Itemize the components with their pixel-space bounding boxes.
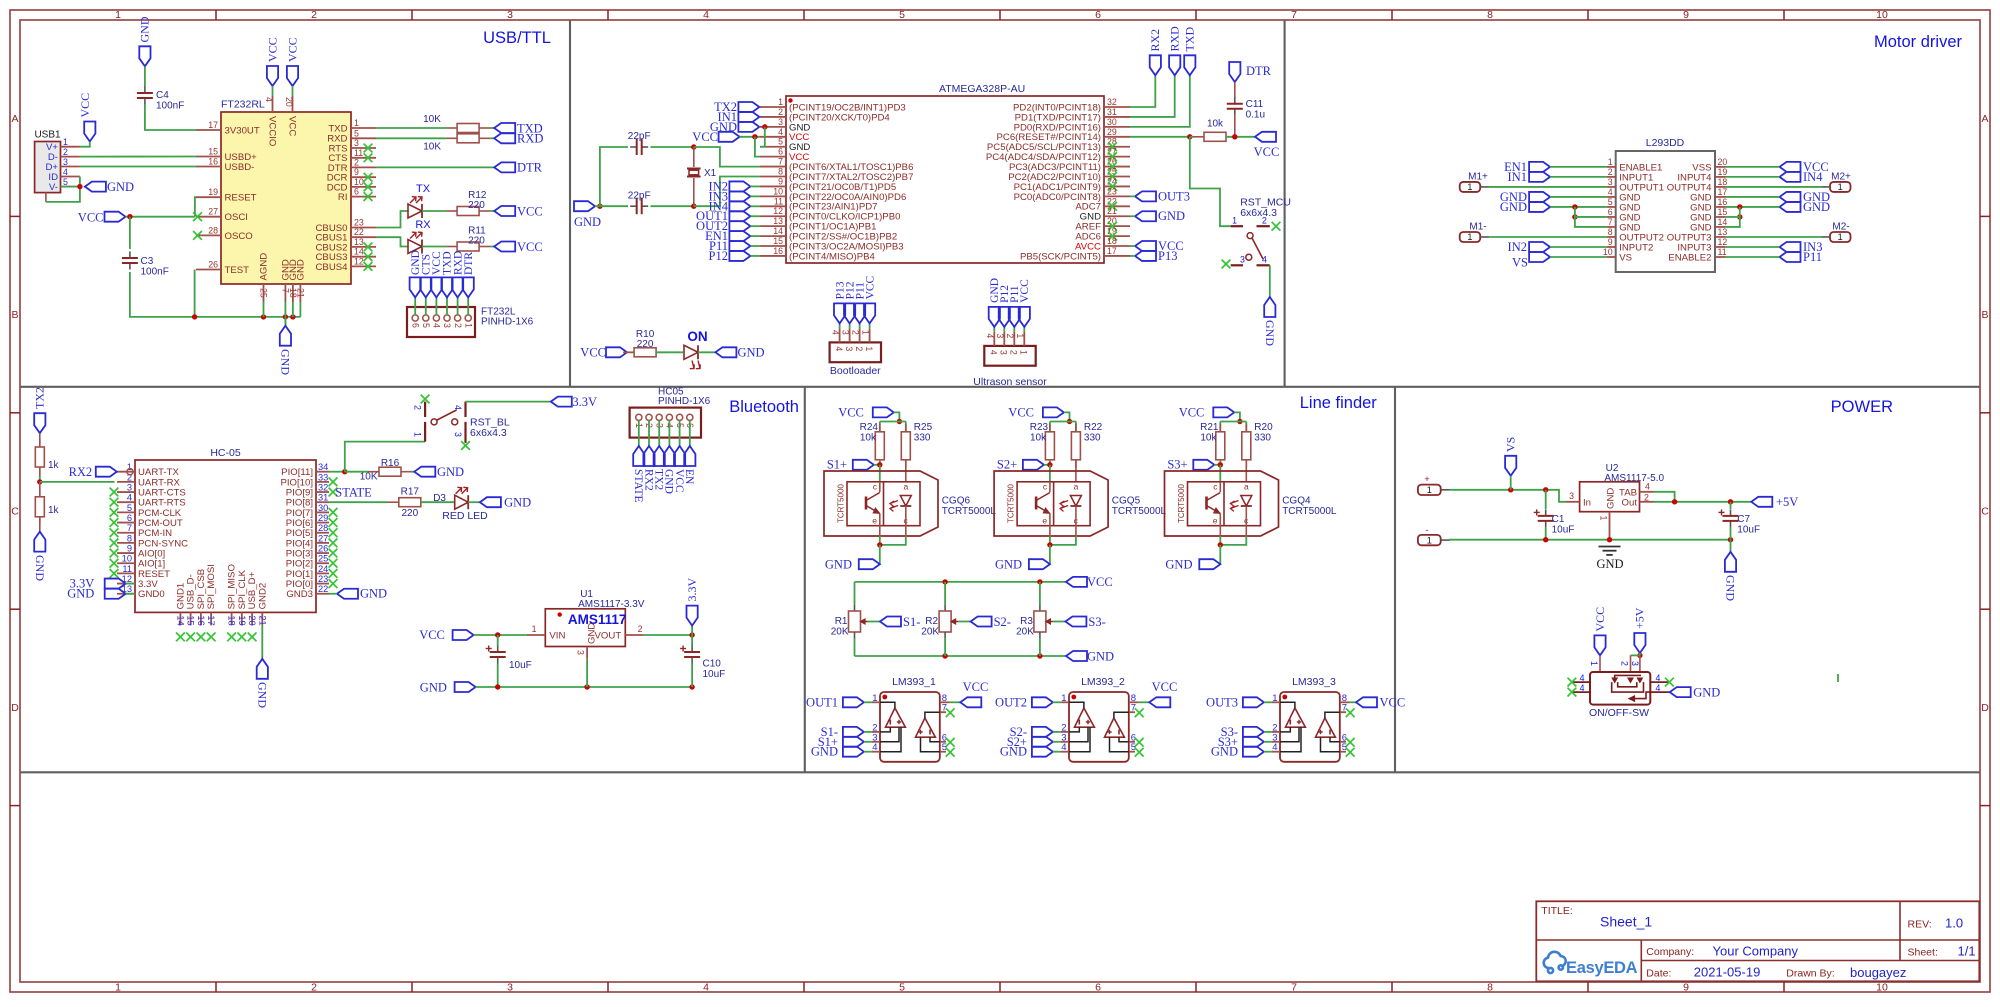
svg-text:7: 7	[1608, 217, 1613, 227]
svg-text:21: 21	[1107, 206, 1117, 216]
svg-text:10: 10	[122, 554, 132, 564]
svg-text:C3: C3	[141, 256, 154, 267]
svg-text:FT232RL: FT232RL	[221, 99, 265, 111]
svg-text:GND: GND	[825, 557, 852, 571]
svg-text:VCC: VCC	[963, 680, 989, 694]
svg-text:10: 10	[773, 186, 783, 196]
svg-text:10K: 10K	[423, 142, 441, 153]
svg-text:VCCIO: VCCIO	[266, 116, 277, 146]
svg-text:Out: Out	[1622, 498, 1638, 509]
svg-text:GND: GND	[1158, 209, 1185, 223]
svg-text:1: 1	[115, 982, 121, 994]
svg-text:Company:: Company:	[1646, 946, 1694, 958]
svg-text:GND: GND	[437, 465, 464, 479]
svg-text:R2: R2	[925, 616, 938, 627]
svg-text:a: a	[1244, 482, 1249, 492]
svg-text:GND: GND	[420, 680, 447, 694]
svg-text:26: 26	[208, 260, 218, 270]
svg-text:10k: 10k	[1030, 433, 1047, 444]
svg-text:VCC: VCC	[692, 130, 718, 144]
svg-text:17: 17	[208, 120, 218, 130]
svg-text:3.3V: 3.3V	[572, 395, 597, 409]
svg-text:18: 18	[1718, 177, 1728, 187]
svg-text:1k: 1k	[48, 460, 60, 471]
svg-text:Your Company: Your Company	[1713, 943, 1799, 958]
svg-text:21: 21	[296, 288, 306, 298]
svg-text:3: 3	[1608, 177, 1613, 187]
svg-text:15: 15	[208, 147, 218, 157]
svg-text:16: 16	[208, 157, 218, 167]
svg-text:33: 33	[318, 472, 328, 482]
svg-text:GND: GND	[255, 682, 269, 708]
svg-text:15: 15	[1718, 207, 1728, 217]
svg-text:11: 11	[1718, 247, 1727, 257]
svg-text:S3+: S3+	[1167, 458, 1187, 472]
svg-text:A: A	[11, 113, 18, 125]
svg-text:VCC: VCC	[1019, 279, 1031, 303]
svg-text:PB5(SCK/PCINT5): PB5(SCK/PCINT5)	[1020, 251, 1101, 262]
svg-text:VCC: VCC	[517, 240, 543, 254]
svg-text:B: B	[1981, 309, 1988, 321]
svg-text:C: C	[1981, 506, 1989, 518]
svg-text:9: 9	[127, 544, 132, 554]
svg-text:2: 2	[638, 624, 643, 634]
svg-text:VCC: VCC	[673, 469, 685, 493]
svg-text:4: 4	[63, 167, 68, 177]
svg-text:GND: GND	[1165, 557, 1192, 571]
svg-text:VS: VS	[1512, 256, 1528, 270]
svg-text:220: 220	[401, 508, 418, 519]
svg-text:e: e	[1042, 516, 1047, 526]
svg-text:6: 6	[1095, 982, 1101, 994]
svg-text:2: 2	[1608, 167, 1613, 177]
svg-text:4: 4	[1580, 673, 1585, 683]
svg-text:1: 1	[413, 432, 423, 437]
svg-text:GND2: GND2	[257, 583, 268, 610]
svg-text:GND: GND	[295, 259, 306, 280]
svg-text:4: 4	[1272, 742, 1277, 753]
svg-text:3: 3	[995, 333, 1005, 338]
svg-text:C11: C11	[1246, 99, 1264, 110]
svg-text:8: 8	[127, 533, 132, 543]
svg-text:21: 21	[257, 615, 267, 625]
svg-text:5: 5	[899, 982, 905, 994]
svg-text:23: 23	[1107, 186, 1117, 196]
svg-text:12: 12	[354, 256, 364, 266]
svg-text:D: D	[1981, 702, 1989, 714]
svg-text:S1-: S1-	[903, 615, 920, 629]
svg-text:GND: GND	[1211, 745, 1238, 759]
svg-text:HC-05: HC-05	[210, 447, 241, 459]
svg-text:1: 1	[1427, 535, 1432, 546]
svg-text:R25: R25	[914, 422, 933, 433]
svg-text:22pF: 22pF	[628, 190, 651, 201]
svg-text:4: 4	[432, 323, 442, 328]
svg-text:1/1: 1/1	[1958, 943, 1976, 958]
svg-text:e: e	[872, 516, 877, 526]
svg-text:27: 27	[318, 533, 328, 543]
svg-text:23: 23	[318, 574, 328, 584]
svg-text:2: 2	[850, 330, 860, 335]
svg-text:7: 7	[1291, 9, 1297, 21]
svg-text:4: 4	[1580, 683, 1585, 693]
svg-text:V-: V-	[49, 182, 58, 193]
svg-text:SPI_MOSI: SPI_MOSI	[206, 564, 217, 609]
svg-text:GND: GND	[1803, 200, 1830, 214]
svg-text:DTR: DTR	[517, 161, 543, 175]
svg-text:20: 20	[1718, 157, 1728, 167]
svg-text:19: 19	[208, 187, 218, 197]
svg-text:ATMEGA328P-AU: ATMEGA328P-AU	[939, 83, 1025, 95]
svg-text:5: 5	[778, 137, 783, 147]
svg-text:23: 23	[354, 218, 364, 228]
svg-text:19: 19	[1718, 167, 1728, 177]
svg-text:D3: D3	[433, 493, 446, 504]
svg-text:4: 4	[830, 330, 840, 335]
svg-text:2: 2	[854, 346, 864, 351]
svg-text:4: 4	[872, 742, 877, 753]
svg-text:10K: 10K	[360, 472, 378, 483]
svg-text:GND: GND	[138, 16, 152, 42]
svg-text:15: 15	[773, 236, 783, 246]
svg-text:P12: P12	[709, 249, 728, 263]
svg-text:1: 1	[1232, 216, 1237, 226]
svg-text:VCC: VCC	[285, 37, 299, 62]
svg-text:8: 8	[1608, 227, 1613, 237]
svg-text:2: 2	[311, 982, 317, 994]
svg-text:18: 18	[227, 615, 237, 625]
svg-text:-: -	[1425, 525, 1428, 536]
svg-text:STATE: STATE	[335, 486, 372, 500]
svg-text:10uF: 10uF	[1552, 525, 1575, 536]
svg-text:4: 4	[1645, 481, 1650, 491]
svg-text:100nF: 100nF	[141, 267, 169, 278]
svg-text:LM393_2: LM393_2	[1081, 676, 1125, 688]
svg-text:1: 1	[1427, 485, 1432, 496]
svg-text:P11: P11	[1803, 250, 1822, 264]
svg-text:LM393_1: LM393_1	[892, 676, 936, 688]
svg-text:TCRT5000L: TCRT5000L	[1112, 506, 1167, 517]
svg-text:6: 6	[1608, 207, 1613, 217]
svg-text:16: 16	[196, 615, 206, 625]
svg-text:28: 28	[318, 523, 328, 533]
svg-text:Sheet_1: Sheet_1	[1600, 913, 1652, 929]
svg-text:OSCI: OSCI	[225, 212, 248, 223]
svg-text:S3-: S3-	[1088, 615, 1105, 629]
svg-text:4: 4	[703, 982, 709, 994]
svg-text:5: 5	[354, 128, 359, 138]
svg-text:PINHD-1X6: PINHD-1X6	[481, 317, 534, 328]
svg-text:9: 9	[1683, 9, 1689, 21]
svg-text:VCC: VCC	[1254, 145, 1280, 159]
svg-text:LM393_3: LM393_3	[1292, 676, 1336, 688]
svg-text:3.3V: 3.3V	[685, 578, 699, 602]
svg-text:11: 11	[774, 196, 783, 206]
svg-text:R23: R23	[1030, 422, 1049, 433]
svg-text:Bluetooth: Bluetooth	[729, 398, 799, 416]
svg-text:D: D	[11, 702, 19, 714]
svg-text:16: 16	[1718, 197, 1728, 207]
svg-text:4: 4	[703, 9, 709, 21]
svg-text:330: 330	[1254, 433, 1271, 444]
svg-text:1: 1	[872, 693, 877, 704]
svg-text:S2+: S2+	[997, 458, 1017, 472]
svg-text:32: 32	[1107, 97, 1117, 107]
svg-text:a: a	[904, 482, 909, 492]
svg-text:GND: GND	[1000, 745, 1027, 759]
svg-text:2: 2	[1262, 216, 1267, 226]
svg-text:TITLE:: TITLE:	[1541, 905, 1573, 917]
svg-text:32: 32	[318, 483, 328, 493]
svg-text:IN1: IN1	[1508, 170, 1527, 184]
svg-text:4: 4	[778, 127, 783, 137]
svg-text:9: 9	[1608, 237, 1613, 247]
svg-text:L293DD: L293DD	[1646, 137, 1685, 149]
svg-text:VCC: VCC	[286, 116, 297, 136]
svg-text:TCRT5000: TCRT5000	[837, 483, 846, 523]
svg-text:25: 25	[259, 288, 269, 298]
svg-text:B: B	[11, 309, 18, 321]
svg-text:GND: GND	[995, 557, 1022, 571]
svg-text:330: 330	[914, 433, 931, 444]
svg-text:VCC: VCC	[864, 275, 876, 299]
svg-text:OUT3: OUT3	[1158, 189, 1190, 203]
svg-text:5: 5	[899, 9, 905, 21]
svg-text:GND: GND	[1263, 320, 1277, 346]
svg-text:10: 10	[1603, 247, 1613, 257]
svg-text:7: 7	[127, 523, 132, 533]
svg-text:1: 1	[1838, 182, 1843, 193]
svg-text:bougayez: bougayez	[1850, 965, 1906, 980]
svg-text:14: 14	[773, 226, 783, 236]
svg-text:17: 17	[1107, 246, 1117, 256]
svg-text:4: 4	[127, 493, 132, 503]
svg-text:GND: GND	[107, 180, 134, 194]
svg-text:USB1: USB1	[34, 130, 61, 141]
svg-text:15: 15	[186, 615, 196, 625]
svg-text:12: 12	[1718, 237, 1728, 247]
svg-text:7: 7	[1291, 982, 1297, 994]
svg-text:1: 1	[860, 330, 870, 335]
svg-text:C1: C1	[1552, 514, 1565, 525]
svg-text:1: 1	[532, 624, 537, 634]
svg-text:VCC: VCC	[1008, 406, 1034, 420]
svg-text:11: 11	[354, 148, 363, 158]
svg-text:25: 25	[318, 554, 328, 564]
svg-text:VCC: VCC	[1152, 680, 1178, 694]
svg-text:2: 2	[413, 405, 423, 410]
svg-text:26: 26	[318, 544, 328, 554]
svg-text:8: 8	[1487, 982, 1493, 994]
svg-text:1k: 1k	[48, 505, 60, 516]
svg-text:REV:: REV:	[1908, 919, 1932, 931]
svg-text:AGND: AGND	[259, 253, 270, 281]
svg-text:10uF: 10uF	[509, 660, 532, 671]
svg-text:POWER: POWER	[1831, 398, 1893, 416]
svg-text:3V30UT: 3V30UT	[225, 125, 260, 136]
svg-text:13: 13	[773, 216, 783, 226]
svg-text:10uF: 10uF	[703, 669, 726, 680]
svg-text:14: 14	[1718, 217, 1728, 227]
svg-text:20K: 20K	[1016, 627, 1034, 638]
svg-text:220: 220	[468, 200, 485, 211]
svg-text:9: 9	[354, 167, 359, 177]
svg-text:Line finder: Line finder	[1300, 394, 1378, 412]
svg-text:10uF: 10uF	[1737, 525, 1760, 536]
svg-text:TXD: TXD	[1183, 27, 1197, 52]
svg-text:GND: GND	[1693, 685, 1720, 699]
svg-text:9: 9	[778, 176, 783, 186]
svg-text:GND: GND	[1596, 557, 1623, 571]
svg-text:20K: 20K	[921, 627, 939, 638]
svg-text:(PCINT4/MISO)PB4: (PCINT4/MISO)PB4	[789, 251, 875, 262]
svg-text:28: 28	[208, 225, 218, 235]
svg-text:VCC: VCC	[517, 204, 543, 218]
svg-text:2: 2	[453, 323, 463, 328]
svg-text:1: 1	[1018, 350, 1028, 355]
svg-text:R20: R20	[1254, 422, 1273, 433]
svg-text:4: 4	[988, 350, 998, 355]
svg-text:R21: R21	[1200, 422, 1219, 433]
svg-text:3: 3	[1569, 491, 1574, 501]
svg-text:VCC: VCC	[1593, 607, 1607, 632]
svg-text:1: 1	[1608, 157, 1613, 167]
svg-text:330: 330	[1084, 433, 1101, 444]
svg-text:GND0: GND0	[138, 589, 165, 600]
svg-text:10k: 10k	[1207, 119, 1224, 130]
svg-text:20: 20	[284, 97, 294, 107]
svg-text:1: 1	[1061, 693, 1066, 704]
svg-text:VCC: VCC	[265, 37, 279, 62]
svg-text:TCRT5000: TCRT5000	[1007, 483, 1016, 523]
svg-text:10K: 10K	[423, 114, 441, 125]
svg-text:2: 2	[1008, 350, 1018, 355]
svg-text:12: 12	[773, 206, 783, 216]
svg-text:VCC: VCC	[838, 406, 864, 420]
svg-text:VCC: VCC	[78, 93, 92, 118]
svg-text:6: 6	[127, 513, 132, 523]
svg-text:17: 17	[1718, 187, 1728, 197]
svg-text:4: 4	[453, 405, 463, 410]
svg-text:4: 4	[1262, 255, 1267, 265]
svg-text:VOUT: VOUT	[595, 630, 622, 641]
svg-text:GND3: GND3	[286, 589, 313, 600]
svg-text:M2+: M2+	[1831, 171, 1851, 182]
svg-text:2: 2	[354, 157, 359, 167]
svg-text:A: A	[1981, 113, 1988, 125]
svg-text:11: 11	[122, 564, 132, 574]
svg-text:3: 3	[1240, 255, 1245, 265]
svg-text:22: 22	[318, 584, 328, 594]
svg-text:7: 7	[778, 157, 783, 167]
svg-text:Sheet:: Sheet:	[1908, 947, 1938, 959]
svg-text:6x6x4.3: 6x6x4.3	[470, 427, 507, 439]
svg-text:RXD: RXD	[517, 132, 543, 146]
svg-text:3: 3	[127, 483, 132, 493]
svg-text:C7: C7	[1737, 514, 1750, 525]
svg-text:TCRT5000L: TCRT5000L	[1282, 506, 1337, 517]
svg-text:13: 13	[354, 237, 364, 247]
svg-text:3: 3	[1630, 661, 1640, 666]
svg-text:VS: VS	[1619, 252, 1632, 263]
svg-text:3: 3	[998, 350, 1008, 355]
svg-text:29: 29	[1107, 127, 1117, 137]
svg-text:10k: 10k	[860, 433, 877, 444]
svg-text:+5V: +5V	[1776, 495, 1798, 509]
svg-text:GND: GND	[279, 349, 293, 375]
svg-text:3: 3	[507, 982, 513, 994]
svg-text:27: 27	[208, 207, 218, 217]
svg-text:13: 13	[1718, 227, 1728, 237]
svg-text:In: In	[1583, 497, 1591, 508]
svg-text:3: 3	[840, 330, 850, 335]
svg-text:VCC: VCC	[1380, 696, 1406, 710]
svg-text:TCRT5000: TCRT5000	[1177, 483, 1186, 523]
svg-text:20: 20	[247, 615, 257, 625]
svg-text:C10: C10	[703, 659, 722, 670]
svg-text:4: 4	[834, 346, 844, 351]
svg-text:RESET: RESET	[225, 193, 257, 204]
svg-text:16: 16	[773, 246, 783, 256]
svg-text:GND: GND	[1500, 200, 1527, 214]
svg-text:GND: GND	[1087, 649, 1114, 663]
svg-text:VS: VS	[1504, 437, 1518, 452]
svg-text:VCC: VCC	[580, 346, 606, 360]
svg-text:30: 30	[1107, 117, 1117, 127]
svg-text:3: 3	[778, 117, 783, 127]
svg-text:5: 5	[421, 323, 431, 328]
svg-text:GND: GND	[811, 745, 838, 759]
svg-text:3: 3	[442, 323, 452, 328]
svg-text:5: 5	[127, 503, 132, 513]
svg-text:1: 1	[63, 137, 68, 147]
svg-text:220: 220	[637, 339, 654, 350]
svg-text:6: 6	[410, 323, 420, 328]
svg-text:2021-05-19: 2021-05-19	[1694, 965, 1761, 980]
svg-text:C4: C4	[156, 90, 169, 101]
svg-text:S1+: S1+	[827, 458, 847, 472]
svg-text:220: 220	[468, 236, 485, 247]
svg-text:1: 1	[1272, 693, 1277, 704]
svg-text:X1: X1	[704, 168, 717, 179]
svg-text:1: 1	[115, 9, 121, 21]
svg-text:8: 8	[778, 167, 783, 177]
svg-text:TEST: TEST	[225, 265, 250, 276]
svg-text:C: C	[11, 506, 19, 518]
svg-text:DTR: DTR	[1246, 64, 1272, 78]
svg-text:e: e	[1213, 516, 1218, 526]
svg-text:9: 9	[1683, 982, 1689, 994]
svg-text:GND: GND	[33, 555, 47, 581]
svg-text:GND: GND	[360, 587, 387, 601]
svg-text:R3: R3	[1020, 616, 1033, 627]
svg-text:6x6x4.3: 6x6x4.3	[1240, 207, 1277, 219]
svg-text:3: 3	[576, 650, 586, 655]
svg-text:STATE: STATE	[632, 469, 644, 503]
svg-text:OUT2: OUT2	[995, 695, 1027, 709]
svg-text:8: 8	[1487, 9, 1493, 21]
svg-text:VIN: VIN	[549, 630, 565, 641]
svg-text:M1+: M1+	[1468, 171, 1488, 182]
svg-text:R17: R17	[401, 487, 420, 498]
svg-text:TX: TX	[416, 183, 431, 195]
svg-text:10: 10	[354, 177, 364, 187]
svg-text:Ultrason sensor: Ultrason sensor	[973, 376, 1047, 388]
svg-text:2: 2	[1644, 492, 1649, 502]
svg-text:M2-: M2-	[1832, 221, 1849, 232]
svg-text:OUT3: OUT3	[1206, 695, 1238, 709]
svg-text:29: 29	[318, 513, 328, 523]
